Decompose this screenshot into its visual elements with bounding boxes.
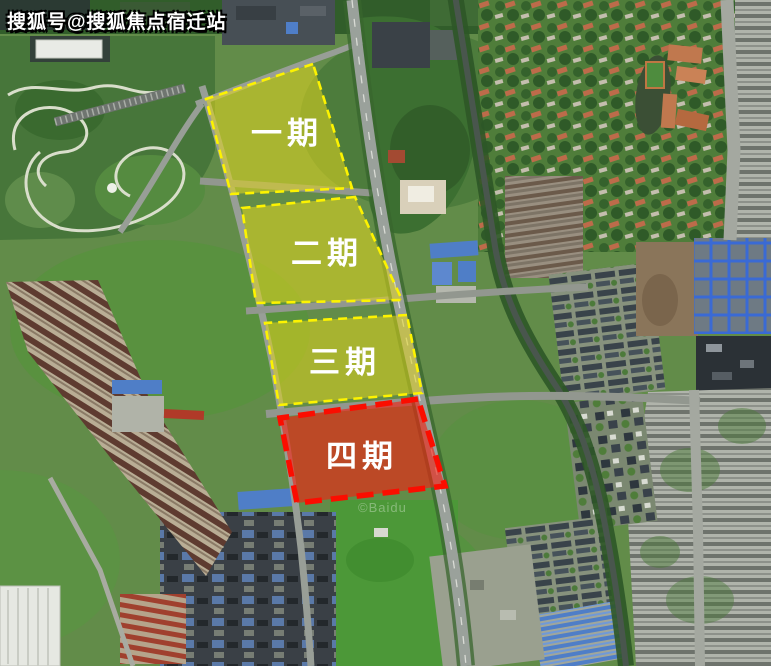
park-area bbox=[0, 36, 215, 240]
satellite-map-screenshot: 一期 二期 三期 四期 搜狐号@搜狐焦点宿迁站 ©Baidu bbox=[0, 0, 771, 666]
phase-4-label: 四期 bbox=[326, 439, 398, 474]
phase-3-zone: 三期 bbox=[265, 315, 422, 405]
phase-4-zone: 四期 bbox=[280, 399, 445, 503]
phase-2-label: 二期 bbox=[291, 236, 363, 271]
phase-3-label: 三期 bbox=[309, 345, 381, 380]
satellite-map: 一期 二期 三期 四期 bbox=[0, 0, 771, 666]
phase-1-label: 一期 bbox=[251, 116, 323, 151]
far-east-blocks-north bbox=[735, 0, 771, 242]
northeast-residential bbox=[478, 0, 736, 278]
sohu-watermark: 搜狐号@搜狐焦点宿迁站 bbox=[7, 7, 227, 34]
baidu-map-credit: ©Baidu bbox=[358, 500, 407, 515]
plaza-parking bbox=[222, 0, 335, 45]
